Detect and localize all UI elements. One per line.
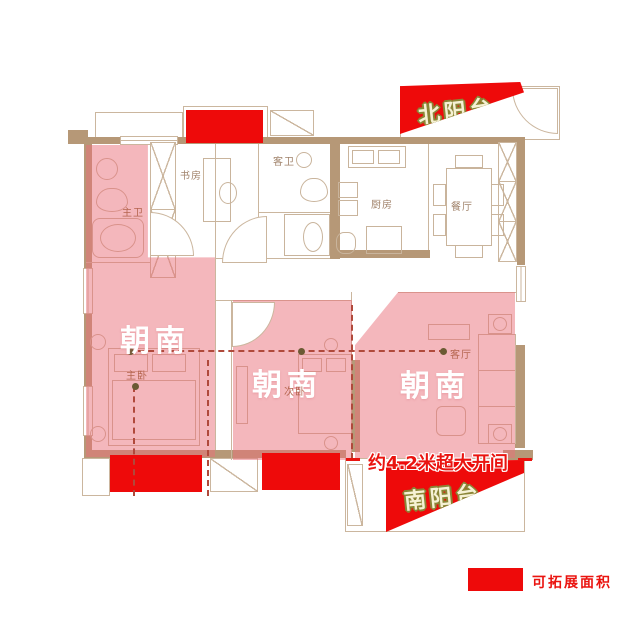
top-left-window-bay — [95, 112, 183, 138]
room-label-second-bedroom: 次卧 — [284, 383, 306, 398]
sink-icon — [296, 152, 312, 168]
expandable-area-bottom-mid — [262, 453, 340, 490]
window-icon — [516, 266, 526, 302]
wall-right-lower — [515, 345, 525, 448]
basin-icon — [336, 232, 356, 254]
kitchen-sink-bowl — [378, 150, 400, 164]
expandable-area-bottom-left — [110, 455, 202, 492]
stove-icon — [338, 182, 358, 198]
chair-icon — [433, 214, 446, 236]
stove-icon — [338, 200, 358, 216]
fridge-icon — [366, 226, 402, 254]
bath-door-arc — [150, 212, 194, 256]
window-symbol-icon — [270, 110, 314, 136]
legend-label: 可拓展面积 — [532, 572, 612, 592]
expandable-area-top — [186, 110, 263, 143]
chair-icon — [433, 184, 446, 206]
wall-right-upper — [517, 137, 525, 265]
guide-dot — [298, 348, 305, 355]
south-facing-label: 朝南 — [400, 361, 470, 405]
study-door-arc — [222, 216, 267, 263]
room-divider — [428, 144, 429, 250]
chair-icon — [455, 155, 483, 168]
room-divider — [258, 212, 330, 213]
chair-icon — [491, 184, 504, 206]
room-label-guest-bath: 客卫 — [273, 153, 295, 168]
room-label-kitchen: 厨房 — [371, 196, 393, 211]
window-symbol-icon — [210, 458, 258, 492]
room-label-dining: 餐厅 — [451, 198, 473, 213]
legend-swatch — [468, 568, 523, 591]
room-label-master-bedroom: 主卧 — [126, 367, 148, 382]
chair-icon — [219, 182, 237, 204]
room-label-master-bath: 主卫 — [122, 204, 144, 219]
floor-plan: 北阳台 南阳台 朝南 朝南 朝南 主卫 书房 客卫 厨房 餐厅 主卧 次卧 客厅… — [0, 0, 640, 640]
guide-dot — [440, 348, 447, 355]
kitchen-sink-bowl — [352, 150, 374, 164]
chair-icon — [491, 214, 504, 236]
bottom-left-bay — [82, 458, 110, 496]
dashed-guide-vertical — [133, 386, 137, 496]
chair-icon — [455, 245, 483, 258]
bay-width-callout: 约4.2米超大开间 — [352, 449, 524, 475]
dashed-guide-vertical — [351, 305, 355, 459]
washbasin-icon — [303, 222, 323, 252]
dashed-guide-vertical — [207, 360, 211, 496]
south-facing-label: 朝南 — [120, 316, 190, 360]
room-label-study: 书房 — [180, 167, 202, 182]
toilet-icon — [300, 178, 328, 202]
guide-dot — [132, 383, 139, 390]
room-label-living: 客厅 — [450, 346, 472, 361]
